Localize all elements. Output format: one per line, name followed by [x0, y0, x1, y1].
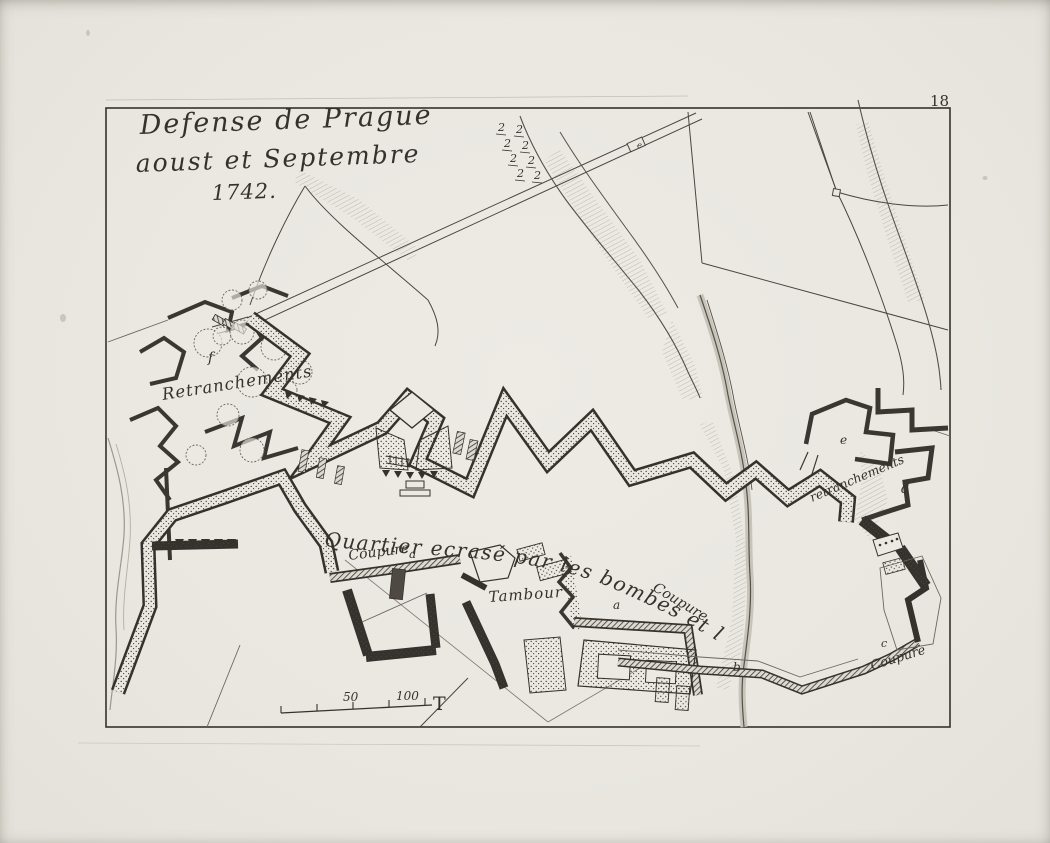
scale-50: 50 [343, 690, 359, 704]
title-block: Defense de Prague aoust et Septembre 174… [135, 100, 433, 205]
marker-c: c [881, 637, 887, 650]
svg-text:2: 2 [527, 154, 535, 167]
marker-b: b [733, 660, 741, 674]
engraved-map-sheet: 2 2 2 2 2 2 2 2 [0, 0, 1050, 843]
coupure-label-east: Coupure [869, 643, 928, 674]
city-blocks [524, 637, 696, 710]
svg-text:2: 2 [509, 152, 517, 165]
plate-number: 18 [930, 92, 949, 110]
svg-text:2: 2 [521, 139, 529, 152]
svg-text:2: 2 [533, 169, 541, 182]
map-title-line2: aoust et Septembre [135, 139, 421, 178]
marker-d: d [901, 482, 909, 497]
scale-t: T [433, 693, 446, 715]
battery-symbols: 2 2 2 2 2 2 2 2 [496, 121, 542, 183]
marker-a-west: a [409, 547, 416, 561]
svg-text:2: 2 [516, 167, 524, 180]
map-title-line3: 1742. [211, 179, 277, 205]
svg-text:2: 2 [497, 121, 505, 134]
scale-bar: 50 100 T [281, 689, 446, 715]
main-fortification-wall [250, 318, 848, 522]
svg-text:2: 2 [515, 123, 523, 136]
block-west [347, 590, 436, 657]
map-canvas: 2 2 2 2 2 2 2 2 [0, 0, 1050, 843]
map-title-line1: Defense de Prague [138, 100, 433, 141]
svg-text:2: 2 [503, 137, 511, 150]
marker-a-center: a [613, 598, 620, 612]
outwork-southwest [118, 391, 345, 692]
marker-e-road: e [637, 141, 642, 151]
tambour-label: Tambour [488, 583, 564, 606]
scale-100: 100 [396, 689, 419, 703]
marker-e: e [840, 433, 847, 447]
